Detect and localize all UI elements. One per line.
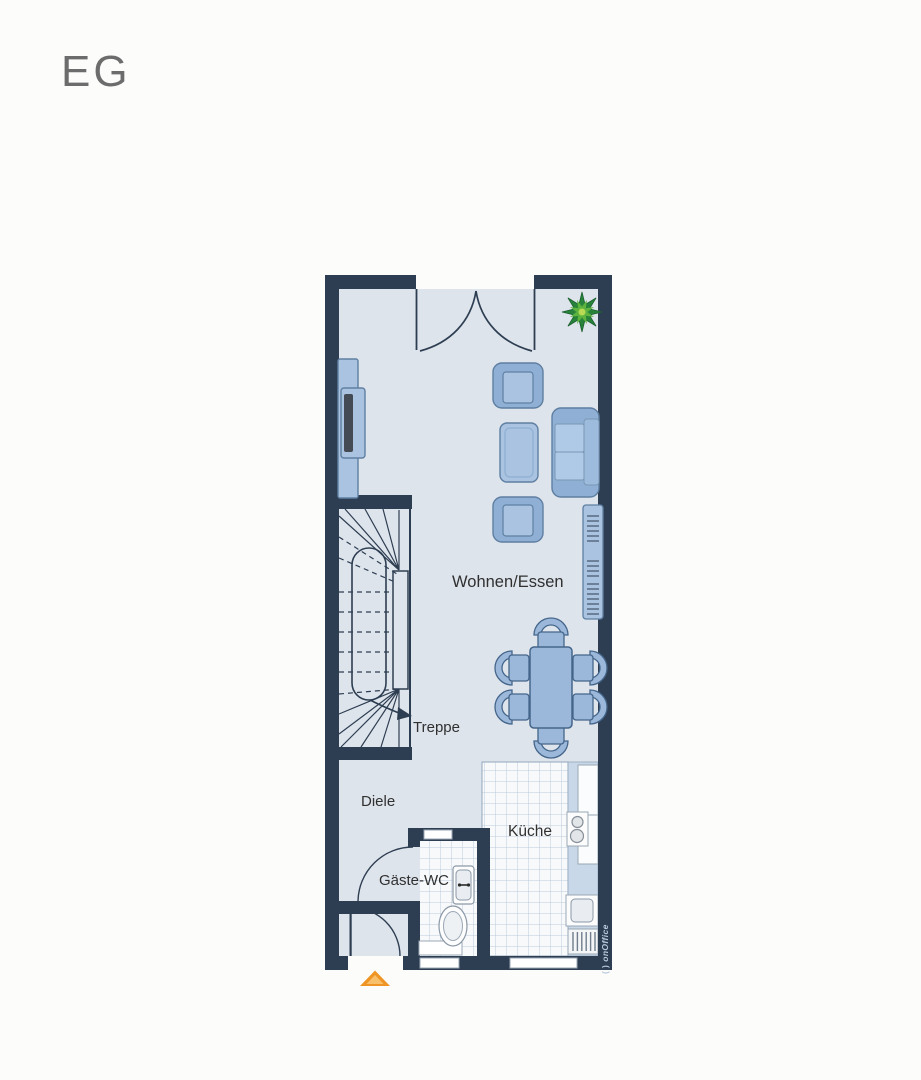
ottoman: [500, 423, 538, 482]
sofa: [552, 408, 599, 497]
dining-chair: [573, 690, 607, 724]
armchair-bottom: [493, 497, 543, 542]
dining-chair: [495, 690, 529, 724]
room-label-gaeste-wc: Gäste-WC: [379, 873, 449, 890]
room-label-treppe: Treppe: [413, 720, 460, 737]
tv-icon: [344, 394, 353, 452]
onoffice-watermark: ( )onOffice: [600, 879, 610, 974]
entrance-arrow-marker: [360, 971, 390, 987]
floorplan-drawing: [325, 275, 612, 990]
window-wc: [424, 830, 452, 839]
kitchen-tiles: [482, 762, 568, 956]
floor-title: EG: [61, 50, 131, 94]
wall-shelf: [583, 505, 603, 619]
window-bottom-left: [420, 958, 459, 968]
room-label-diele: Diele: [361, 794, 395, 811]
kitchen-counter: [566, 762, 598, 956]
plant-icon: [562, 292, 602, 332]
dining-chair: [534, 724, 568, 758]
onoffice-watermark-name: onOffice: [600, 924, 610, 962]
cooktop-icon: [567, 812, 588, 846]
sink-icon: [566, 895, 598, 926]
washbasin-icon: [453, 866, 474, 904]
dining-chair: [495, 651, 529, 685]
room-label-kueche: Küche: [508, 823, 552, 840]
toilet-icon: [439, 906, 467, 946]
armchair-top: [493, 363, 543, 408]
room-label-wohnen-essen: Wohnen/Essen: [452, 573, 564, 591]
dining-table: [530, 647, 572, 728]
dining-chair: [573, 651, 607, 685]
onoffice-logo-icon: ( ): [600, 965, 610, 974]
dishwasher-icon: [568, 929, 598, 954]
window-bottom-right: [510, 958, 577, 968]
